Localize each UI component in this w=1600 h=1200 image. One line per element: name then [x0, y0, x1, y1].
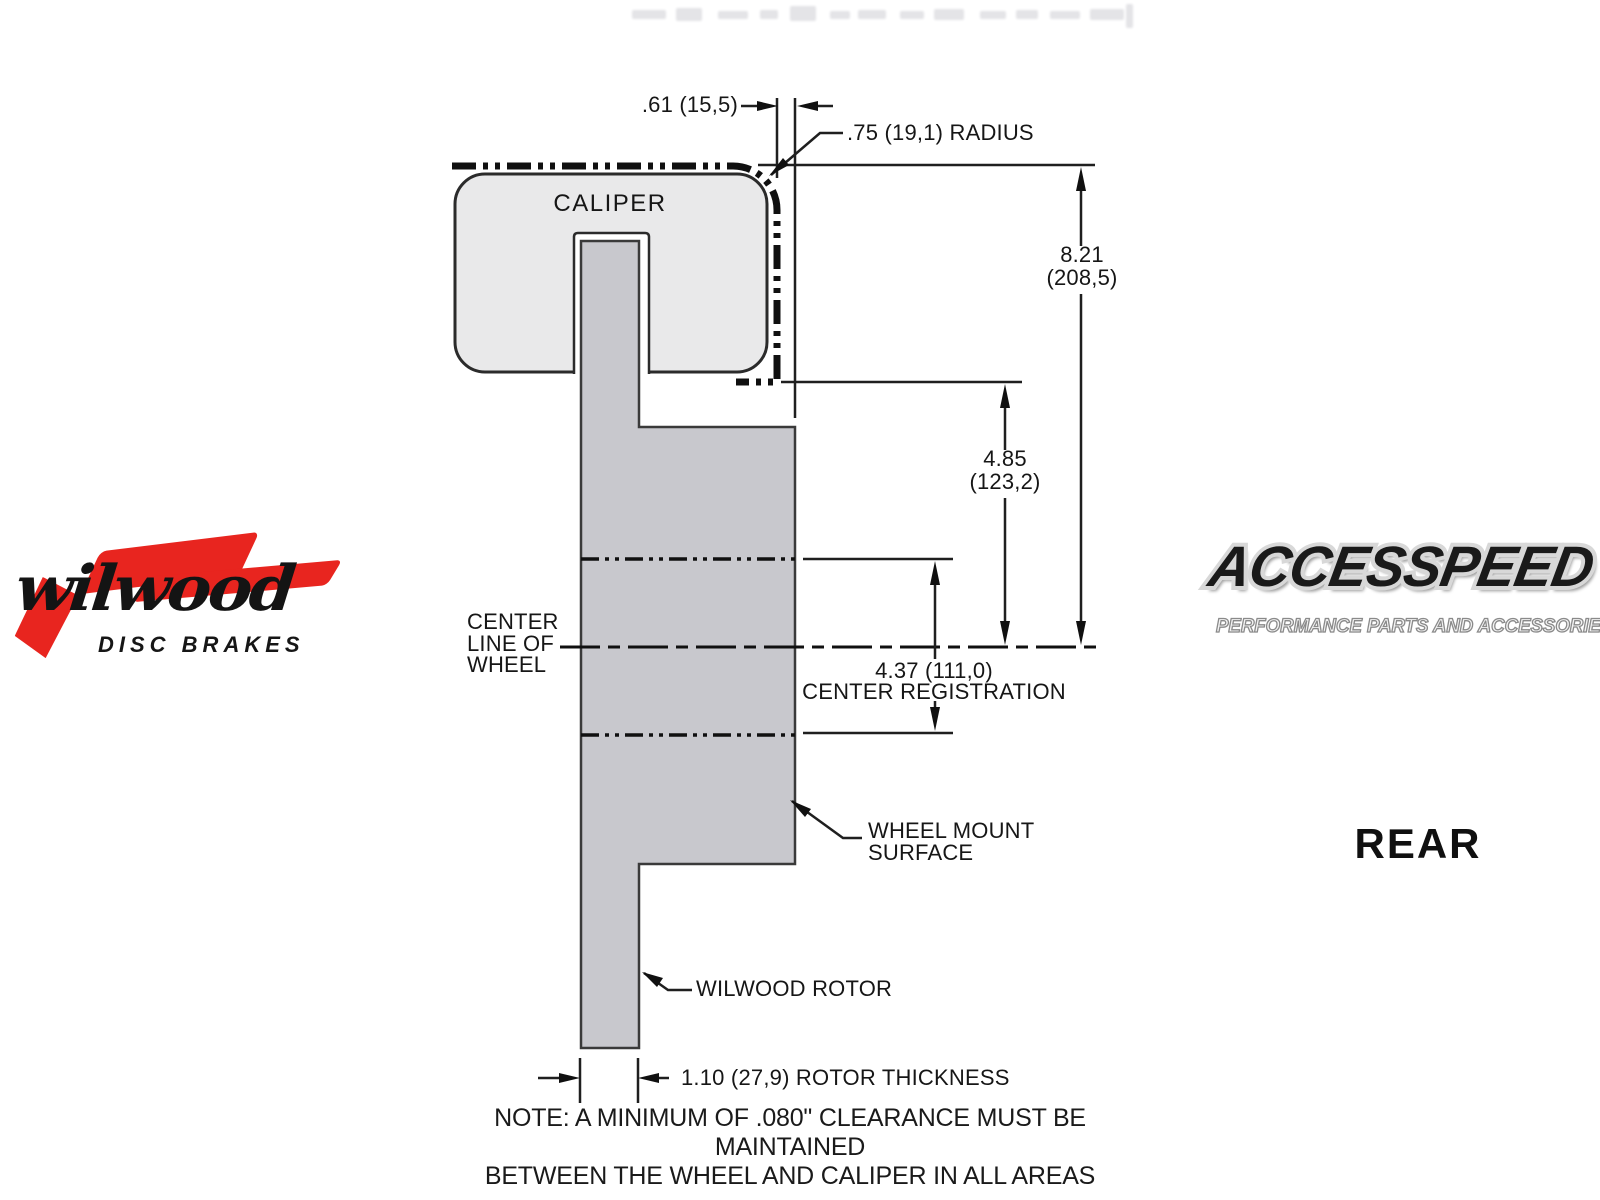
overall-height-in: 8.21	[1023, 243, 1141, 266]
mount-height-mm: (123,2)	[946, 470, 1064, 493]
clearance-note: NOTE: A MINIMUM OF .080" CLEARANCE MUST …	[420, 1104, 1160, 1191]
view-label-rear: REAR	[1318, 820, 1518, 868]
accesspeed-logo: ACCESSPEED ACCESSPEED PERFORMANCE PARTS …	[1198, 534, 1568, 654]
dimension-center-registration: 4.37 (111,0) CENTER REGISTRATION	[802, 660, 1066, 702]
wheel-mount-surface-label: WHEEL MOUNT SURFACE	[868, 820, 1034, 864]
overall-height-mm: (208,5)	[1023, 266, 1141, 289]
accesspeed-wordmark: ACCESSPEED	[1204, 534, 1598, 600]
dimension-mount-height: 4.85 (123,2)	[946, 447, 1064, 493]
accesspeed-tagline: PERFORMANCE PARTS AND ACCESSORIES	[1216, 616, 1600, 638]
wilwood-wordmark: wilwood	[12, 551, 350, 625]
wilwood-tagline: DISC BRAKES	[98, 632, 305, 658]
center-registration-value: 4.37 (111,0)	[802, 660, 1066, 681]
caliper-label: CALIPER	[545, 192, 675, 215]
dimension-radius: .75 (19,1) RADIUS	[847, 121, 1034, 144]
brake-kit-dimension-sheet: CALIPER .61 (15,5) .75 (19,1) RADIUS 8.2…	[0, 0, 1600, 1200]
wilwood-logo: wilwood DISC BRAKES	[12, 535, 342, 665]
dimension-rotor-thickness: 1.10 (27,9) ROTOR THICKNESS	[681, 1066, 1010, 1089]
center-registration-label: CENTER REGISTRATION	[802, 681, 1066, 702]
mount-height-in: 4.85	[946, 447, 1064, 470]
rotor-label: WILWOOD ROTOR	[696, 977, 892, 1000]
dimension-caliper-offset: .61 (15,5)	[628, 93, 738, 116]
centerline-label: CENTER LINE OF WHEEL	[467, 611, 559, 676]
dimension-overall-height: 8.21 (208,5)	[1023, 243, 1141, 289]
